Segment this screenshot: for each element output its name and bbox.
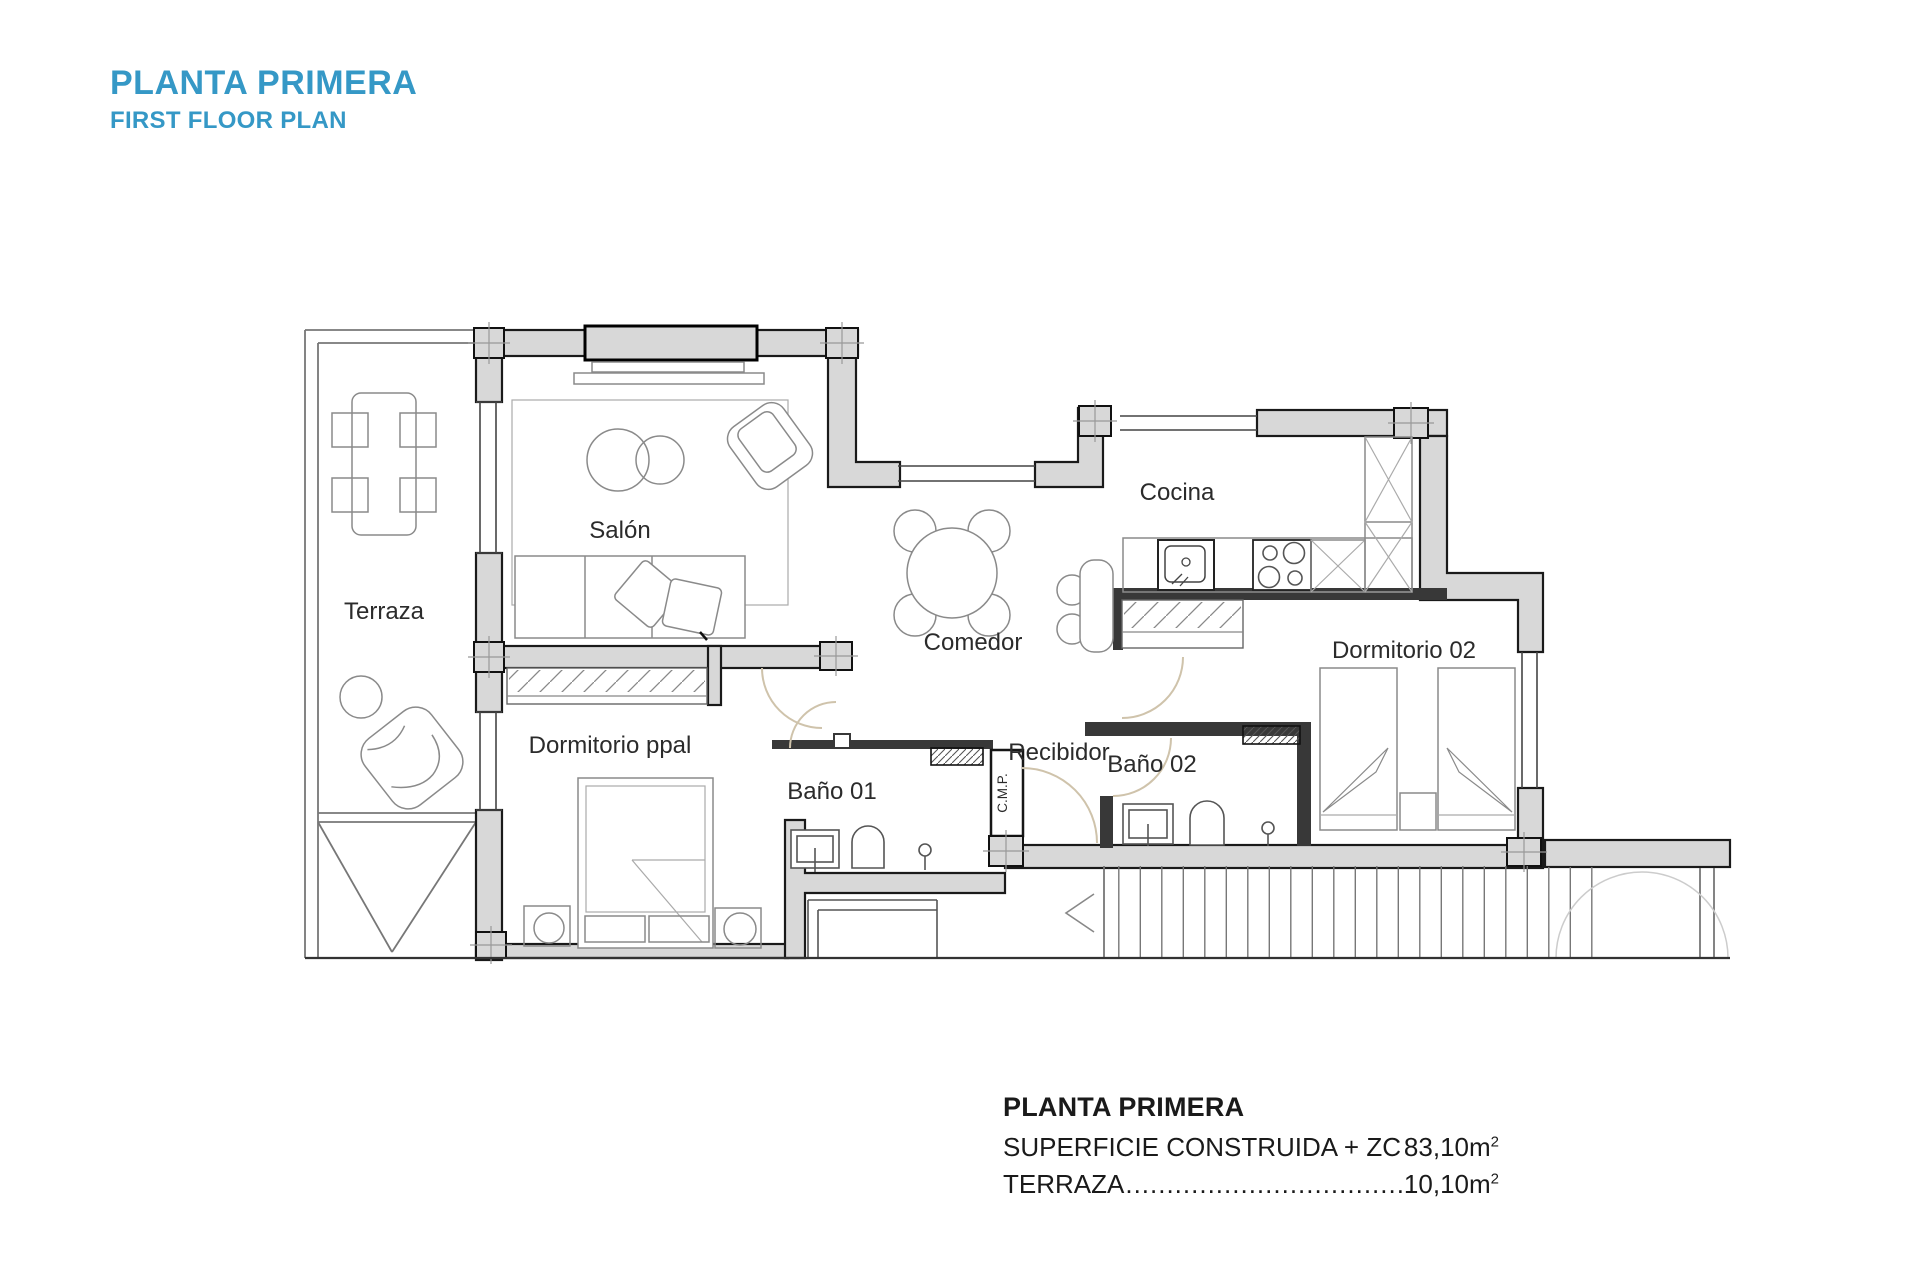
stair-direction-arrow: [1066, 894, 1094, 932]
terraza-lounge-chair: [353, 699, 471, 817]
room-label-bano01: Baño 01: [787, 778, 876, 805]
lower-roof-outline: [808, 900, 937, 958]
room-label-cocina: Cocina: [1140, 479, 1215, 506]
summary-row-label: TERRAZA: [1003, 1166, 1124, 1203]
room-label-bano02: Baño 02: [1107, 751, 1196, 778]
summary-row-leader: ........................................…: [1125, 1166, 1403, 1203]
wardrobe-corridor: [1122, 600, 1243, 648]
room-label-dormitorio02: Dormitorio 02: [1332, 637, 1476, 664]
area-summary: PLANTA PRIMERA SUPERFICIE CONSTRUIDA + Z…: [1003, 1092, 1499, 1203]
summary-row-value: 10,10m2: [1404, 1166, 1499, 1203]
room-label-cmp: C.M.P.: [995, 773, 1010, 813]
comedor-dining-set: [894, 510, 1010, 636]
room-label-salon: Salón: [589, 517, 650, 544]
summary-title: PLANTA PRIMERA: [1003, 1092, 1499, 1123]
kitchen-tall-cabinets: [1311, 437, 1412, 592]
stairs: [1066, 866, 1728, 958]
salon-top-window: [585, 326, 757, 360]
room-label-comedor: Comedor: [924, 629, 1023, 656]
summary-row-value: 83,10m2: [1404, 1129, 1499, 1166]
terraza-side-table: [340, 676, 382, 718]
room-label-recibidor: Recibidor: [1008, 739, 1109, 766]
terraza-walls: [305, 330, 476, 958]
terraza-dining-set: [332, 393, 436, 535]
wardrobe-dormitorio-ppal: [507, 668, 707, 704]
dormitorio02-furniture: [1320, 668, 1515, 830]
summary-row: TERRAZA ................................…: [1003, 1166, 1499, 1203]
summary-row-label: SUPERFICIE CONSTRUIDA + ZC: [1003, 1129, 1401, 1166]
room-label-terraza: Terraza: [344, 598, 425, 625]
bano01-fixtures: [791, 826, 931, 872]
room-label-dormitorio-ppal: Dormitorio ppal: [529, 732, 692, 759]
floor-plan-page: PLANTA PRIMERA FIRST FLOOR PLAN: [0, 0, 1920, 1280]
salon-furniture: [512, 362, 818, 640]
summary-row-leader: ........................................…: [1402, 1129, 1403, 1166]
kitchen-peninsula: [1080, 560, 1113, 652]
summary-row: SUPERFICIE CONSTRUIDA + ZC .............…: [1003, 1129, 1499, 1166]
floor-plan-drawing: Terraza Salón Comedor Cocina Dormitorio …: [0, 0, 1920, 1280]
dormitorio-ppal-furniture: [524, 778, 761, 948]
bano02-fixtures: [1123, 801, 1274, 846]
